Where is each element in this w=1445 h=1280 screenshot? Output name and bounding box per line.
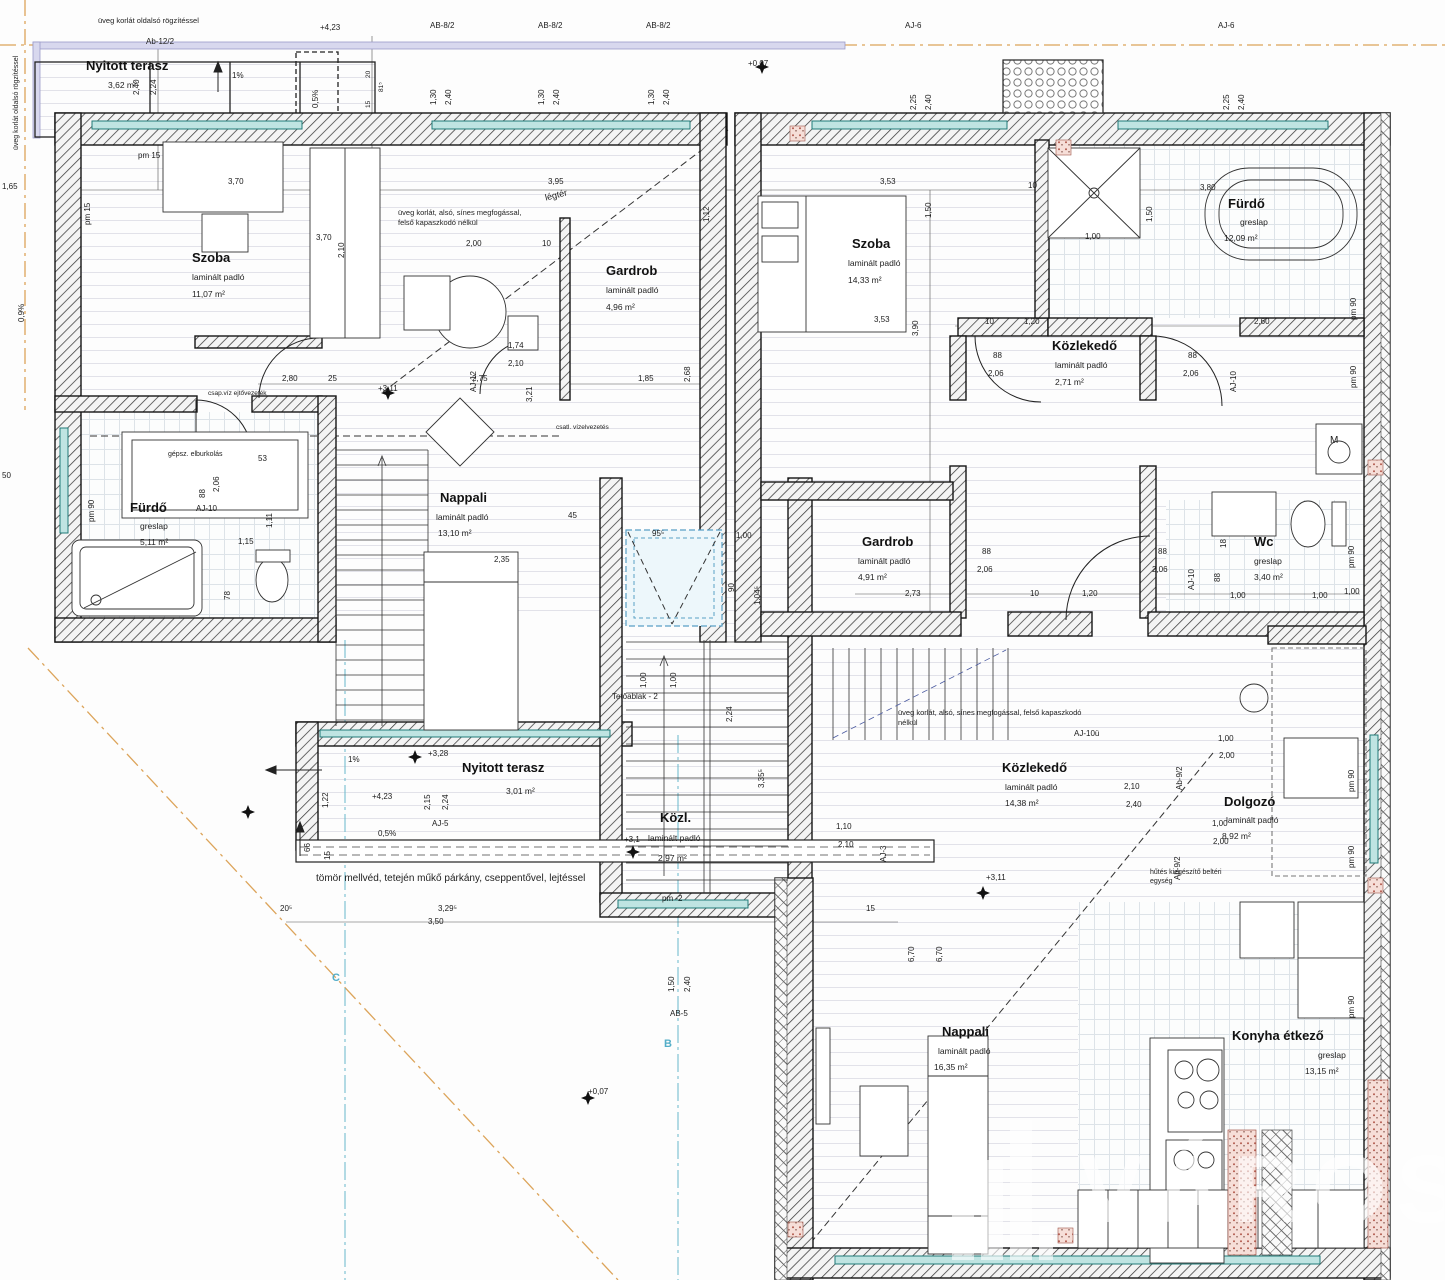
dim-label: 45 [568, 512, 577, 520]
room-name: Szoba [852, 236, 890, 251]
dim-label: 88 [982, 548, 991, 556]
door-code: AJ-3 [880, 846, 888, 862]
level-label: +3,11 [986, 874, 1006, 882]
slope-label: 1% [348, 756, 360, 764]
window-code: Ab-9/2 [1176, 766, 1184, 790]
floor-plan-canvas [0, 0, 1445, 1280]
room-area: 2,97 m² [658, 853, 687, 863]
dim-label: pm 15 [84, 203, 92, 225]
dim-label: 1,20 [1082, 590, 1098, 598]
level-label: +3,11 [378, 385, 398, 393]
dim-label: pm 90 [1348, 996, 1356, 1018]
room-floor: laminált padló [192, 272, 244, 282]
dim-label: 3,90 [912, 320, 920, 336]
dim-label: 1,50 [668, 976, 676, 992]
dim-label: 88 [1158, 548, 1167, 556]
note-mech-cover: gépsz. elburkolás [168, 450, 222, 459]
window-code: AB-8/2 [538, 22, 562, 30]
room-floor: laminált padló [848, 258, 900, 268]
dim-label: 90 [728, 583, 736, 592]
room-name: Nyitott terasz [462, 760, 544, 775]
room-floor: laminált padló [938, 1046, 990, 1056]
room-name: Konyha étkező [1232, 1028, 1324, 1043]
dim-label: 1,00 [640, 672, 648, 688]
dim-label: 53 [258, 455, 267, 463]
level-label: +3,1 [624, 836, 640, 844]
dim-label: 1,85 [638, 375, 654, 383]
washer-label: M [1330, 436, 1338, 446]
dim-label: 1,00 [670, 672, 678, 688]
dim-label: 1,00 [1218, 735, 1234, 743]
slope-label: 0,5% [312, 90, 320, 108]
dim-label: 3,29⁵ [438, 905, 457, 913]
chimney-block [1003, 60, 1103, 113]
room-area: 12,09 m² [1224, 233, 1258, 243]
dim-label: 6,70 [936, 946, 944, 962]
dim-label: 18 [1220, 539, 1228, 548]
dim-label: 3,70 [316, 234, 332, 242]
dim-label: 15 [324, 851, 332, 860]
room-floor: laminált padló [606, 285, 658, 295]
dim-label: 1,74 [508, 342, 524, 350]
dim-label: 3,70 [228, 178, 244, 186]
dim-label: 1,10 [836, 823, 852, 831]
room-name: Fürdő [1228, 196, 1265, 211]
dim-label: 2,25 [1223, 94, 1231, 110]
dim-label: 1,00 [1085, 233, 1101, 241]
dim-label: pm 15 [138, 152, 160, 160]
window-code: AB-8/2 [646, 22, 670, 30]
dim-label: 2,06 [977, 566, 993, 574]
dim-label: 2,40 [684, 976, 692, 992]
room-name: Közl. [660, 810, 691, 825]
room-area: 14,33 m² [848, 275, 882, 285]
dim-label: 1,30 [430, 89, 438, 105]
slope-label: 0,9% [18, 304, 26, 322]
room-floor: greslap [140, 521, 168, 531]
level-label: +0,07 [748, 60, 768, 68]
room-area: 2,71 m² [1055, 377, 1084, 387]
level-label: +4,23 [320, 24, 340, 32]
note-drain-conn: csatl. vízelvezetés [556, 424, 609, 432]
dim-label: 1,00 [1344, 588, 1360, 596]
note-skylight: Tetőablak - 2 [612, 692, 658, 702]
note-glass-left: üveg korlát oldalsó rögzítéssel [12, 56, 21, 150]
dim-label: 1,04⁵ [754, 586, 762, 605]
room-area: 8,92 m² [1222, 831, 1251, 841]
room-floor: laminált padló [436, 512, 488, 522]
level-label: +0,07 [588, 1088, 608, 1096]
dim-label: 1,50 [1146, 206, 1154, 222]
door-code: AJ-10 [1230, 371, 1238, 392]
grid-axis-b: B [664, 1038, 672, 1050]
room-name: Fürdő [130, 500, 167, 515]
dim-label: 2,24 [442, 794, 450, 810]
room-floor: greslap [1318, 1050, 1346, 1060]
dim-label: 1,30 [538, 89, 546, 105]
room-area: 4,91 m² [858, 572, 887, 582]
room-name: Közlekedő [1052, 338, 1117, 353]
dim-label: 2,40 [553, 89, 561, 105]
dim-label: 1,12 [703, 206, 711, 222]
dim-label: 15 [366, 101, 373, 108]
dim-label: 2,24 [150, 79, 158, 95]
dim-label: 2,40 [1126, 801, 1142, 809]
level-label: +4,23 [372, 793, 392, 801]
window-code: AB-5 [670, 1010, 688, 1018]
dim-label: 3,50 [428, 918, 444, 926]
dim-label: 1,00 [1230, 592, 1246, 600]
room-name: Gardrob [606, 263, 657, 278]
dim-label: 1,30 [648, 89, 656, 105]
dim-label: 2,40 [445, 89, 453, 105]
room-area: 13,10 m² [438, 528, 472, 538]
dim-label: 3,53 [880, 178, 896, 186]
room-floor: laminált padló [858, 556, 910, 566]
dim-label: 2,35 [494, 556, 510, 564]
window-code: Ab-12/2 [146, 38, 174, 46]
note-glass-rail-right: üveg korlát, alsó, sínes megfogással, fe… [898, 708, 1098, 728]
dim-label: 10 [542, 240, 551, 248]
room-floor: greslap [1254, 556, 1282, 566]
dim-label: 2,40 [1238, 94, 1246, 110]
room-floor: laminált padló [1226, 815, 1278, 825]
dim-label: 25 [328, 375, 337, 383]
dim-label: 2,06 [213, 476, 221, 492]
dim-label: 2,25 [910, 94, 918, 110]
slope-label: 1% [232, 72, 244, 80]
dim-label: 1,00 [736, 532, 752, 540]
room-name: Nyitott terasz [86, 58, 168, 73]
dim-label: 1,22 [322, 792, 330, 808]
dim-label: 2,06 [1152, 566, 1168, 574]
dim-label: 3,80 [1200, 184, 1216, 192]
dim-label: 20⁵ [280, 905, 292, 913]
room-name: Közlekedő [1002, 760, 1067, 775]
dim-label: 88 [1214, 573, 1222, 582]
note-cooling: hűtés kiegészítő beltéri egység [1150, 868, 1245, 886]
dim-label: 2,10 [1124, 783, 1140, 791]
window-code: AJ-6 [1218, 22, 1234, 30]
level-label: +3,28 [428, 750, 448, 758]
dim-label: 20 [366, 71, 373, 78]
dim-label: 2,10 [338, 242, 346, 258]
dim-label: pm 90 [1348, 846, 1356, 868]
dim-label: 2,06 [1183, 370, 1199, 378]
dim-label: 88 [993, 352, 1002, 360]
dim-label: 10 [1030, 590, 1039, 598]
grid-axis-c: C [332, 972, 340, 984]
door-code: AJ-10 [1188, 569, 1196, 590]
room-area: 3,40 m² [1254, 572, 1283, 582]
dim-label: 3,21 [526, 386, 534, 402]
dim-label: pm -2 [662, 895, 682, 903]
dim-label: 2,10 [838, 841, 854, 849]
window-code: AJ-6 [905, 22, 921, 30]
dim-label: 50 [2, 472, 11, 480]
room-area: 3,01 m² [506, 786, 535, 796]
dim-label: 2,73 [905, 590, 921, 598]
skylight [626, 530, 722, 626]
room-name: Nappali [440, 490, 487, 505]
dim-label: 1,20 [1024, 318, 1040, 326]
room-area: 5,11 m² [140, 537, 168, 547]
room-area: 11,07 m² [192, 289, 225, 299]
dim-label: 10 [985, 318, 994, 326]
dim-label: 88 [199, 489, 207, 498]
dim-label: 66 [304, 843, 312, 852]
dim-label: pm 90 [1350, 298, 1358, 320]
dim-label: pm 90 [1348, 770, 1356, 792]
room-name: Dolgozó [1224, 794, 1275, 809]
dim-label: 95⁵ [652, 530, 664, 538]
dim-label: 1,50 [925, 202, 933, 218]
note-glass-top: üveg korlát oldalsó rögzítéssel [98, 16, 199, 26]
room-area: 13,15 m² [1305, 1066, 1339, 1076]
dim-label: 2,00 [1219, 752, 1235, 760]
door-code: AJ-10ü [1074, 730, 1099, 738]
dim-label: 2,00 [466, 240, 482, 248]
note-water-drain: csap.víz ejtővezeték [208, 390, 270, 398]
dim-label: 2,80 [282, 375, 298, 383]
room-area: 16,35 m² [934, 1062, 968, 1072]
dim-label: 3,35⁵ [758, 769, 766, 788]
room-area: 3,62 m² [108, 80, 137, 90]
dim-label: 6,70 [908, 946, 916, 962]
dim-label: 1,11 [266, 513, 274, 528]
dim-label: pm 90 [1348, 546, 1356, 568]
window-code: AB-8/2 [430, 22, 454, 30]
dim-label: 2,60 [1254, 318, 1270, 326]
room-floor: laminált padló [1005, 782, 1057, 792]
room-name: Nappali [942, 1024, 989, 1039]
dim-label: 2,40 [925, 94, 933, 110]
room-name: Szoba [192, 250, 230, 265]
room-name: Gardrob [862, 534, 913, 549]
door-code: AJ-12 [470, 371, 478, 392]
dim-label: 1,65 [2, 183, 18, 191]
dim-label: 2,40 [663, 89, 671, 105]
dim-label: 81⁵ [379, 82, 386, 92]
dim-label: 1,15 [238, 538, 254, 546]
dim-label: 2,24 [726, 706, 734, 722]
dim-label: 2,10 [508, 360, 524, 368]
dim-label: 1,00 [1312, 592, 1328, 600]
note-glass-rail-top: üveg korlát, alsó, sínes megfogással, fe… [398, 208, 536, 228]
note-parapet: tömör mellvéd, tetején műkő párkány, cse… [316, 872, 716, 885]
dim-label: 15 [866, 905, 875, 913]
door-code: AJ-5 [432, 820, 448, 828]
room-floor: greslap [1240, 217, 1268, 227]
dim-label: 2,06 [988, 370, 1004, 378]
dim-label: pm 90 [88, 500, 96, 522]
room-name: Wc [1254, 534, 1274, 549]
room-area: 14,38 m² [1005, 798, 1039, 808]
room-floor: laminált padló [648, 833, 700, 843]
slope-label: 0,5% [378, 830, 396, 838]
dim-label: 3,95 [548, 178, 564, 186]
room-area: 4,96 m² [606, 302, 635, 312]
dim-label: pm 90 [1350, 366, 1358, 388]
dim-label: 78 [224, 591, 232, 600]
room-floor: laminált padló [1055, 360, 1107, 370]
floor-plan: üveg korlát oldalsó rögzítéssel üveg kor… [0, 0, 1445, 1280]
dim-label: 2,15 [424, 794, 432, 810]
dim-label: 88 [1188, 352, 1197, 360]
dim-label: 10 [1028, 182, 1037, 190]
door-code: AJ-10 [196, 505, 217, 513]
dim-label: 2,68 [684, 366, 692, 382]
dim-label: 3,53 [874, 316, 890, 324]
